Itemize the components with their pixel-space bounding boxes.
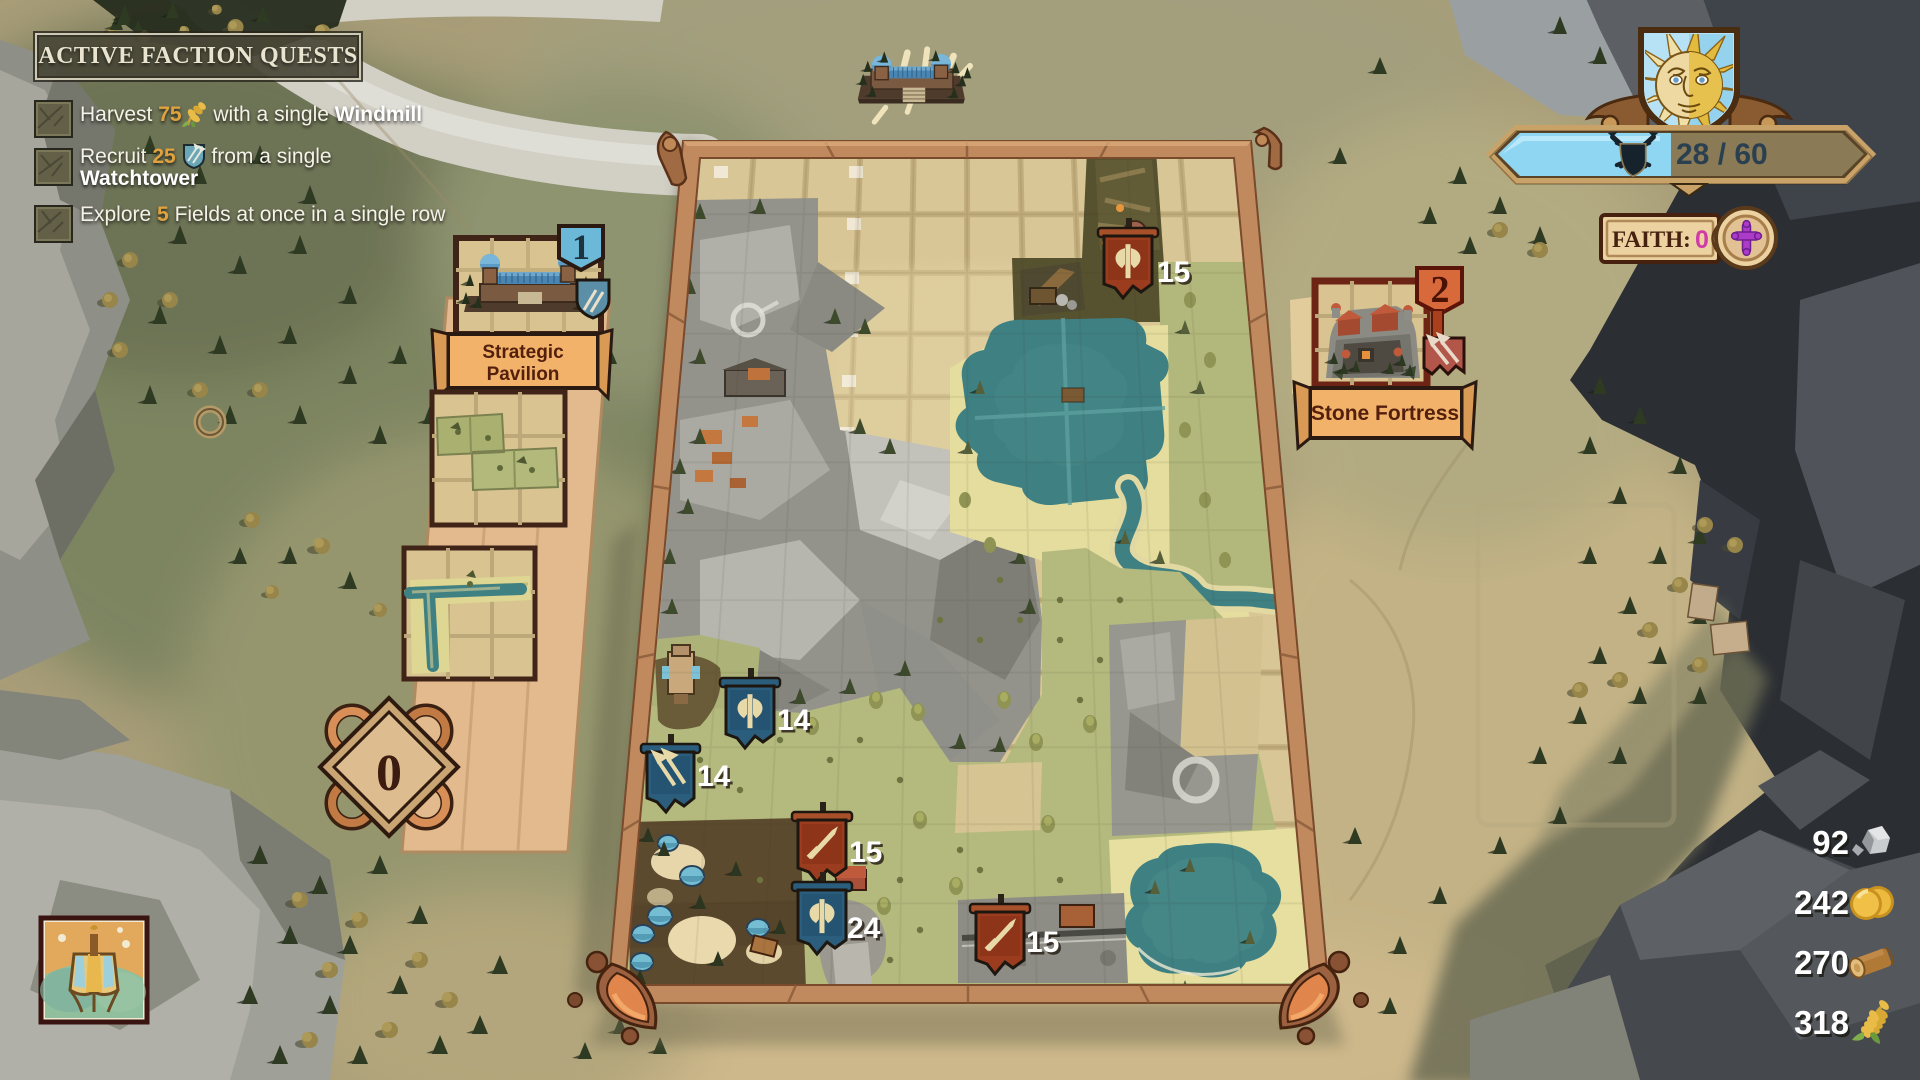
svg-text:Pavilion: Pavilion [487,364,560,385]
svg-text:28 / 60: 28 / 60 [1676,138,1768,171]
svg-text:318: 318 [1794,1004,1849,1041]
svg-text:14: 14 [697,760,731,793]
svg-text:Strategic: Strategic [482,342,564,363]
svg-text:14: 14 [777,704,811,737]
svg-text:Stone Fortress: Stone Fortress [1311,402,1459,425]
svg-text:FAITH:: FAITH: [1612,227,1691,252]
svg-text:15: 15 [1026,926,1059,959]
svg-text:242: 242 [1794,884,1849,921]
svg-text:2: 2 [1431,269,1450,311]
svg-text:92: 92 [1812,824,1849,861]
svg-text:270: 270 [1794,944,1849,981]
svg-text:15: 15 [1157,256,1190,289]
svg-text:24: 24 [847,912,881,945]
svg-text:1: 1 [572,227,590,267]
svg-text:15: 15 [849,836,882,869]
svg-text:0: 0 [1695,226,1709,254]
svg-text:0: 0 [376,745,402,802]
